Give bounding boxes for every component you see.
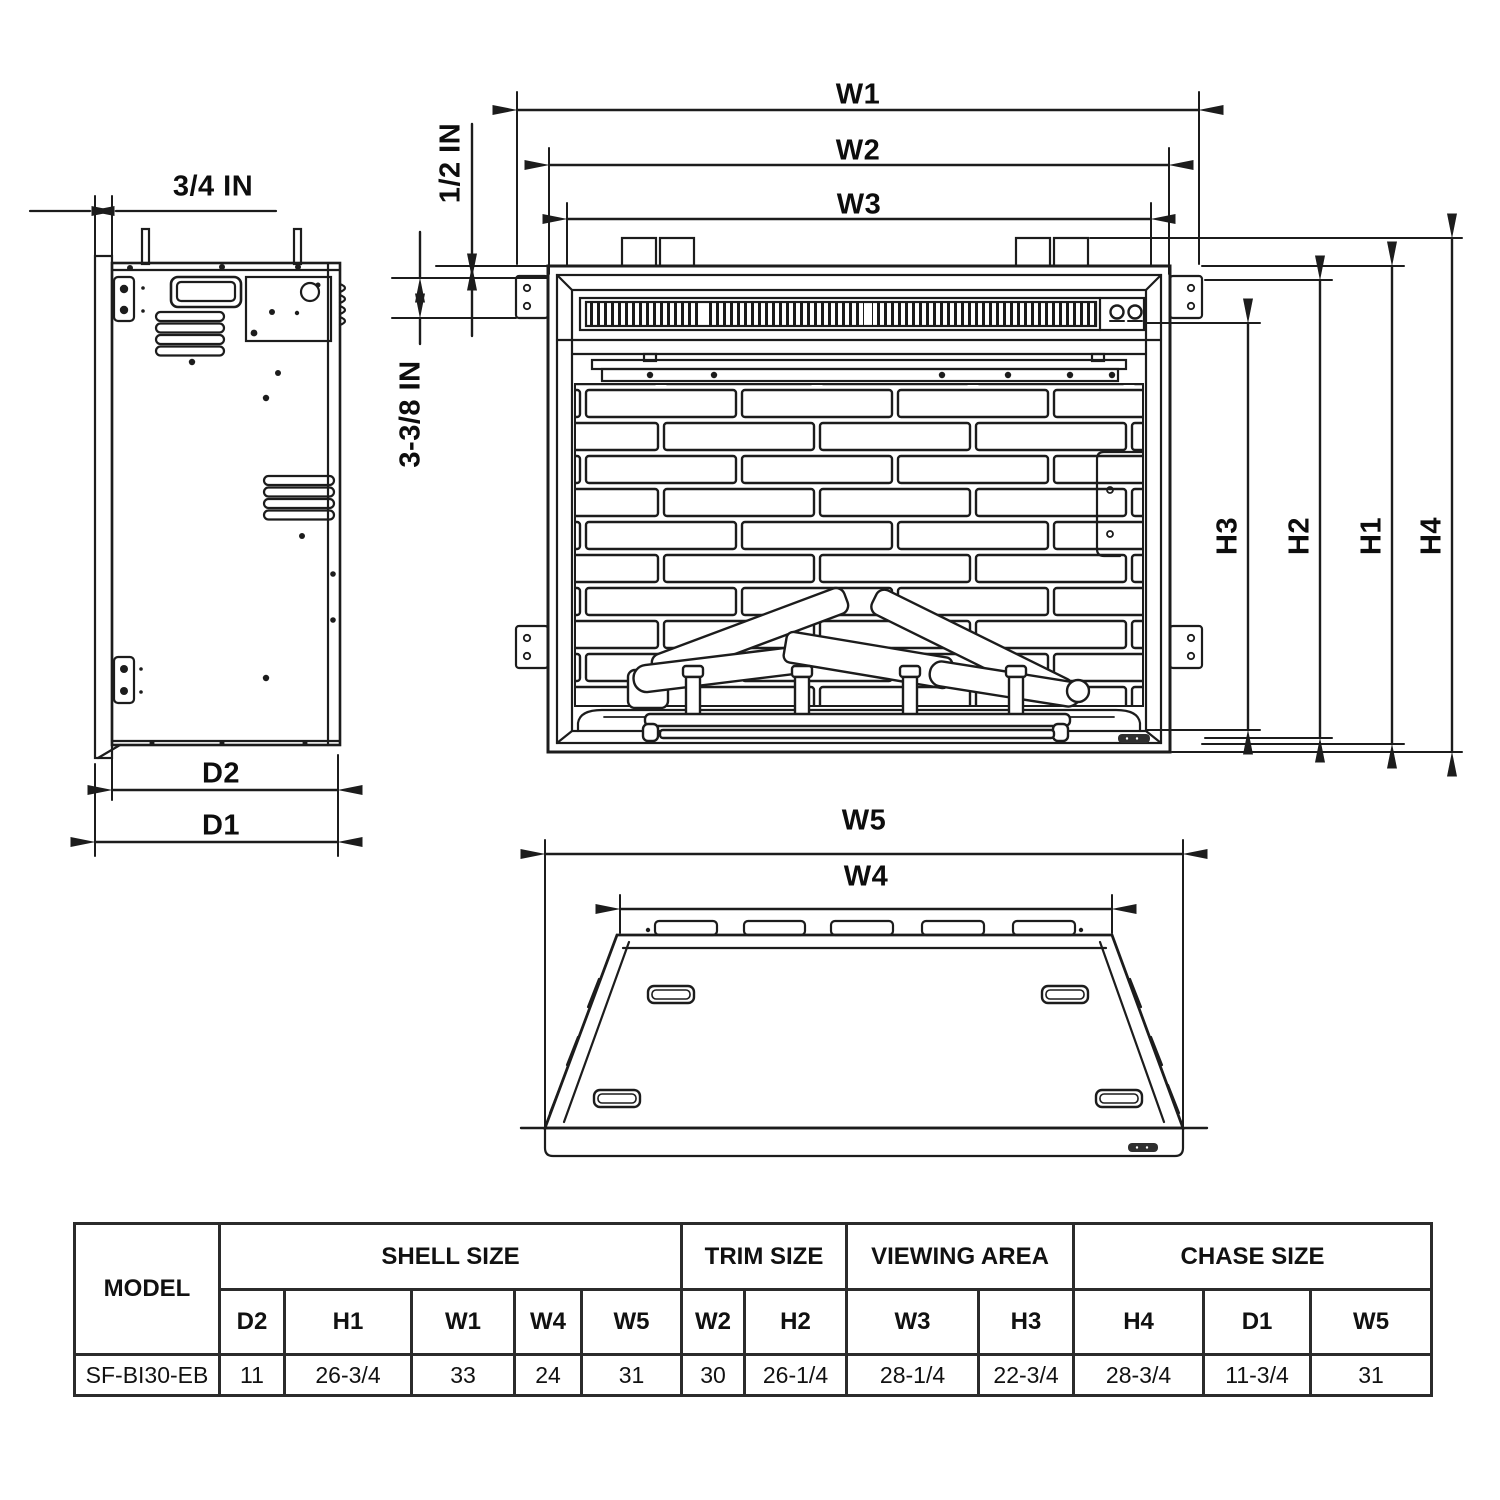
value-cell: 24 [515, 1355, 582, 1396]
dim-label-w4: W4 [844, 861, 889, 894]
model-cell: SF-BI30-EB [75, 1355, 220, 1396]
dim-label-w1: W1 [836, 79, 881, 112]
front-view-drawing [392, 92, 1462, 752]
brand-mark-bottom [1128, 1143, 1158, 1152]
value-cell: 11 [220, 1355, 285, 1396]
col-header: W5 [1311, 1290, 1432, 1355]
dim-label-d1: D1 [202, 810, 240, 843]
col-header: H1 [285, 1290, 412, 1355]
value-cell: 33 [412, 1355, 515, 1396]
col-header: W5 [582, 1290, 682, 1355]
dim-label-w3: W3 [837, 189, 882, 222]
value-cell: 28-3/4 [1074, 1355, 1204, 1396]
dim-label-w2: W2 [836, 135, 881, 168]
group-header-trim-size: TRIM SIZE [682, 1224, 847, 1290]
col-header: H3 [979, 1290, 1074, 1355]
value-cell: 31 [582, 1355, 682, 1396]
value-cell: 26-3/4 [285, 1355, 412, 1396]
table-row: SF-BI30-EB 11 26-3/4 33 24 31 30 26-1/4 … [75, 1355, 1432, 1396]
dim-label-3-3-8-in: 3-3/8 IN [395, 360, 428, 467]
col-header: D2 [220, 1290, 285, 1355]
dim-label-h1: H1 [1356, 517, 1389, 555]
model-header-cell: MODEL [75, 1224, 220, 1355]
side-view-drawing [30, 196, 345, 856]
col-header: D1 [1204, 1290, 1311, 1355]
dim-label-w5: W5 [842, 805, 887, 838]
spec-table: MODEL SHELL SIZE TRIM SIZE VIEWING AREA … [73, 1222, 1433, 1397]
brand-mark [1118, 734, 1150, 743]
value-cell: 11-3/4 [1204, 1355, 1311, 1396]
col-header: W4 [515, 1290, 582, 1355]
fireplace-spec-sheet: 3/4 IN W1 W2 W3 1/2 IN 3-3/8 IN D2 D1 H3… [0, 0, 1500, 1500]
value-cell: 26-1/4 [745, 1355, 847, 1396]
col-header: H4 [1074, 1290, 1204, 1355]
table-group-header-row: MODEL SHELL SIZE TRIM SIZE VIEWING AREA … [75, 1224, 1432, 1290]
table-sub-header-row: D2 H1 W1 W4 W5 W2 H2 W3 H3 H4 D1 W5 [75, 1290, 1432, 1355]
group-header-viewing-area: VIEWING AREA [847, 1224, 1074, 1290]
dim-label-d2: D2 [202, 758, 240, 791]
col-header: W3 [847, 1290, 979, 1355]
dim-label-h4: H4 [1416, 517, 1449, 555]
dim-label-h3: H3 [1212, 517, 1245, 555]
dim-label-h2: H2 [1284, 517, 1317, 555]
col-header: W1 [412, 1290, 515, 1355]
group-header-shell-size: SHELL SIZE [220, 1224, 682, 1290]
dim-label-three-quarter-in: 3/4 IN [173, 171, 253, 204]
value-cell: 31 [1311, 1355, 1432, 1396]
col-header: W2 [682, 1290, 745, 1355]
value-cell: 30 [682, 1355, 745, 1396]
dim-label-half-in: 1/2 IN [435, 123, 468, 203]
value-cell: 22-3/4 [979, 1355, 1074, 1396]
group-header-chase-size: CHASE SIZE [1074, 1224, 1432, 1290]
value-cell: 28-1/4 [847, 1355, 979, 1396]
col-header: H2 [745, 1290, 847, 1355]
